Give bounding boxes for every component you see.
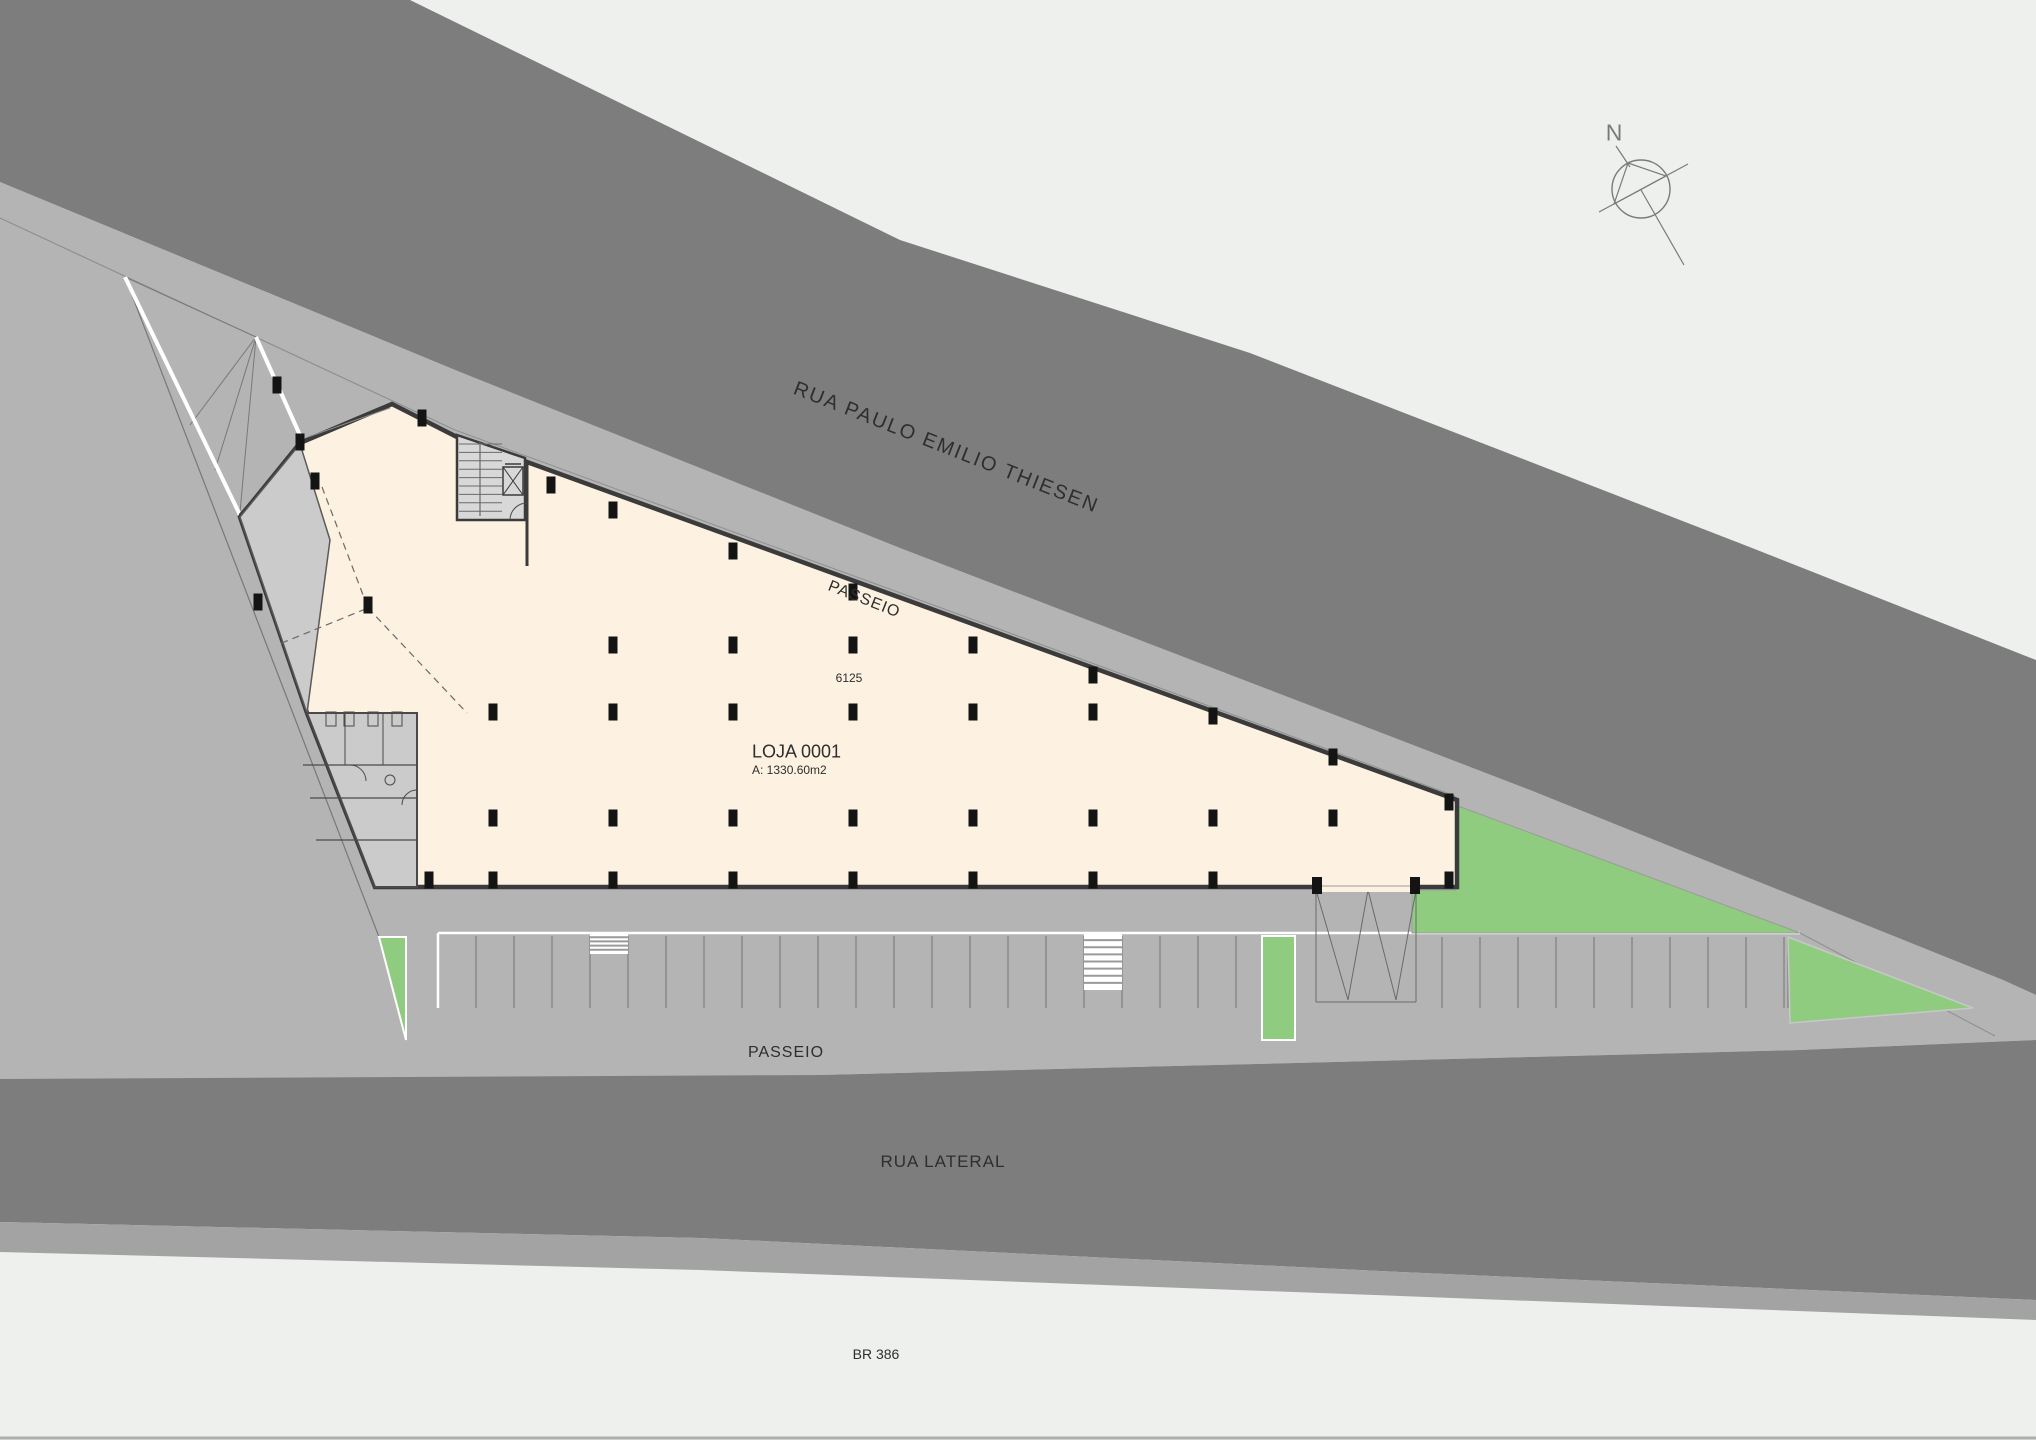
column-marker (849, 872, 858, 889)
column-marker (273, 377, 282, 394)
column-marker (609, 637, 618, 654)
column-marker (849, 637, 858, 654)
column-marker (609, 502, 618, 519)
column-marker (729, 810, 738, 827)
column-marker (1329, 749, 1338, 766)
street-name-side: RUA LATERAL (880, 1152, 1005, 1172)
column-marker (1209, 708, 1218, 725)
column-marker (969, 810, 978, 827)
column-marker (1089, 704, 1098, 721)
door-jamb (1312, 877, 1322, 894)
column-marker (969, 704, 978, 721)
column-marker (1329, 810, 1338, 827)
column-marker (418, 410, 427, 427)
column-marker (729, 543, 738, 560)
column-marker (1445, 794, 1454, 811)
column-marker (849, 810, 858, 827)
column-marker (489, 810, 498, 827)
column-marker (969, 872, 978, 889)
crosswalk (590, 933, 628, 954)
grid-dimension-label: 6125 (836, 671, 863, 685)
column-marker (311, 473, 320, 490)
column-marker (1089, 872, 1098, 889)
north-letter: N (1606, 120, 1623, 147)
unit-name-label: LOJA 0001 (752, 742, 841, 763)
column-marker (729, 704, 738, 721)
column-marker (1089, 667, 1098, 684)
column-marker (489, 872, 498, 889)
site-plan-drawing (0, 0, 2036, 1440)
highway-label: BR 386 (853, 1346, 900, 1362)
column-marker (547, 477, 556, 494)
column-marker (609, 704, 618, 721)
column-marker (609, 872, 618, 889)
column-marker (254, 594, 263, 611)
column-marker (969, 637, 978, 654)
column-marker (296, 434, 305, 451)
door-jamb (1410, 877, 1420, 894)
column-marker (729, 872, 738, 889)
column-marker (364, 597, 373, 614)
unit-area-label: A: 1330.60m2 (752, 763, 827, 777)
column-marker (1209, 872, 1218, 889)
column-marker (489, 704, 498, 721)
column-marker (849, 704, 858, 721)
sidewalk-label-bottom: PASSEIO (748, 1044, 824, 1062)
green-strip-middle (1262, 936, 1295, 1040)
column-marker (729, 637, 738, 654)
column-marker (1089, 810, 1098, 827)
column-marker (1445, 872, 1454, 889)
column-marker (425, 872, 434, 889)
column-marker (1209, 810, 1218, 827)
column-marker (609, 810, 618, 827)
site-plan-canvas: RUA PAULO EMILIO THIESEN PASSEIO 6125 LO… (0, 0, 2036, 1440)
